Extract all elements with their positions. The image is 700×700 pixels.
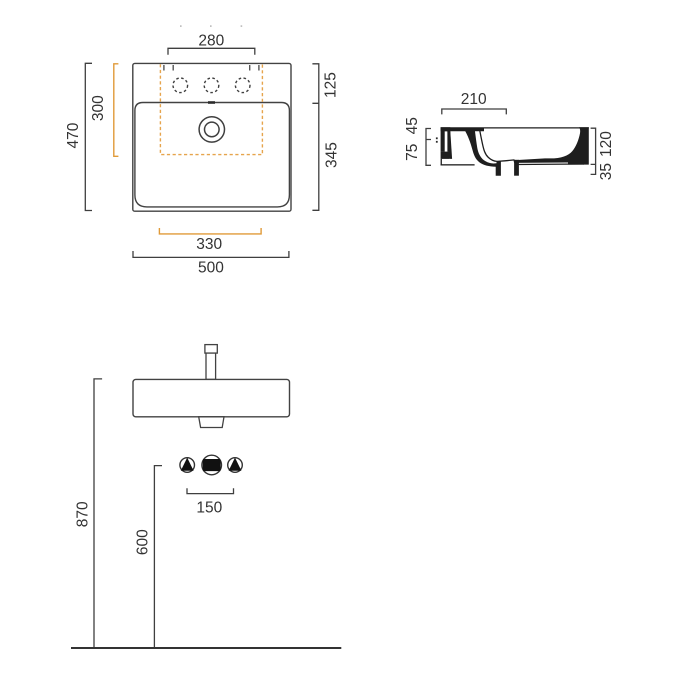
svg-text:300: 300: [90, 95, 107, 121]
svg-text:45: 45: [404, 117, 421, 134]
svg-text:210: 210: [461, 91, 487, 108]
svg-text:150: 150: [196, 499, 222, 516]
svg-text:470: 470: [65, 122, 82, 148]
svg-text:280: 280: [198, 33, 224, 50]
svg-text:345: 345: [323, 142, 340, 168]
svg-text:75: 75: [404, 144, 421, 161]
svg-text:600: 600: [135, 529, 152, 555]
svg-text:120: 120: [598, 131, 615, 157]
svg-text:870: 870: [75, 501, 92, 527]
svg-text:330: 330: [196, 236, 222, 253]
svg-text:35: 35: [598, 163, 615, 180]
svg-text:500: 500: [198, 259, 224, 276]
svg-text:125: 125: [323, 72, 340, 98]
